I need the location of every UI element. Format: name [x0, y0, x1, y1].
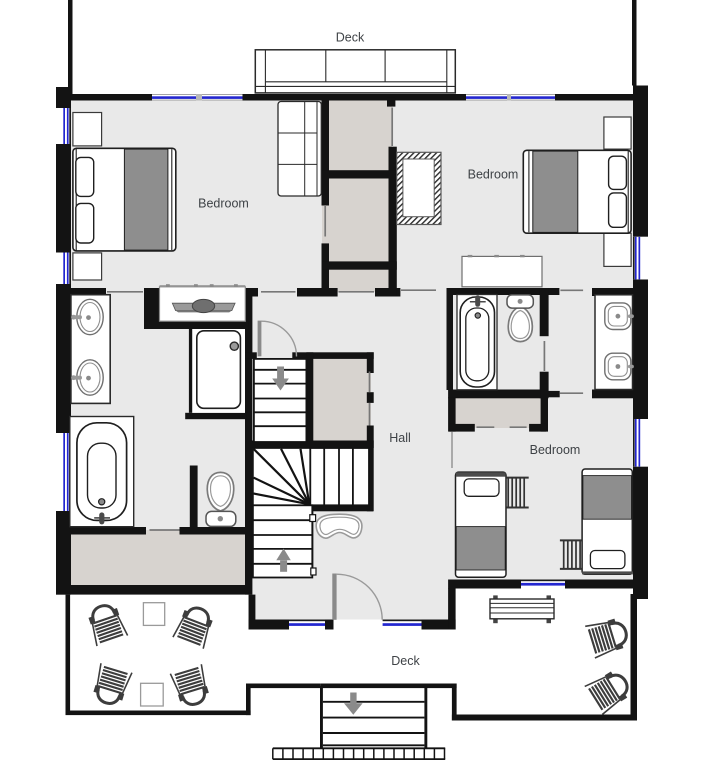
svg-text:Deck: Deck	[391, 654, 420, 668]
svg-text:Bedroom: Bedroom	[468, 168, 519, 182]
svg-text:Bedroom: Bedroom	[530, 443, 581, 457]
svg-text:Hall: Hall	[389, 431, 411, 445]
svg-text:Deck: Deck	[336, 31, 365, 45]
svg-text:Bedroom: Bedroom	[198, 197, 249, 211]
